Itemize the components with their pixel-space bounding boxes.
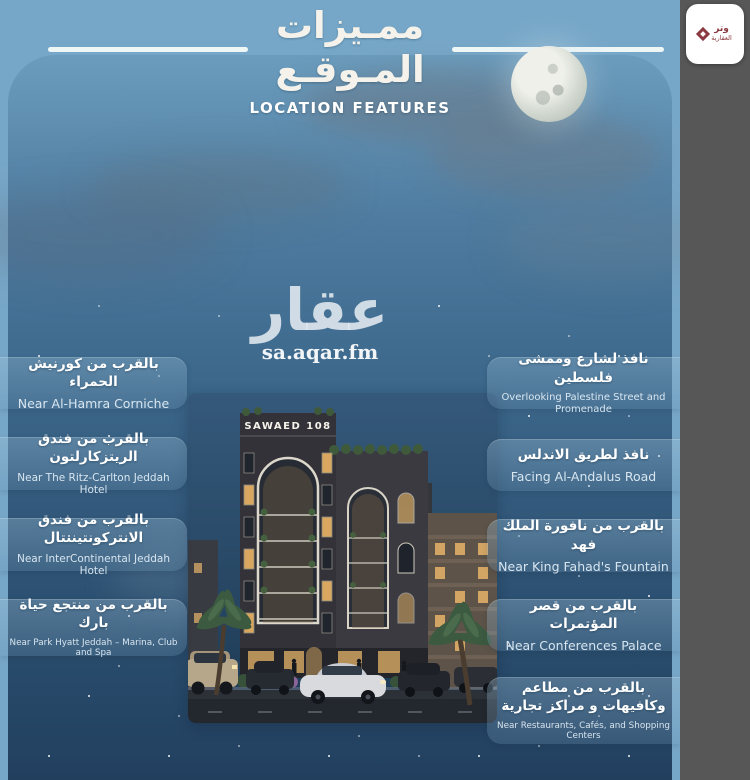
feature-english: Near King Fahad's Fountain bbox=[498, 559, 669, 574]
feature-english: Overlooking Palestine Street and Promena… bbox=[495, 392, 672, 416]
partner-name-line2: العقارية bbox=[711, 35, 732, 42]
partner-logo-card: وتر العقارية bbox=[686, 4, 744, 64]
building-illustration: SAWAED 108 bbox=[188, 393, 497, 723]
feature-arabic: بالقرب من نافورة الملك فهد bbox=[495, 517, 672, 553]
feature-english: Near Park Hyatt Jeddah – Marina, Club an… bbox=[8, 638, 179, 659]
feature-english: Near Restaurants, Cafés, and Shopping Ce… bbox=[495, 721, 672, 742]
feature-arabic: بالقرب من منتجع حياة بارك bbox=[8, 596, 179, 632]
building-sign-text: SAWAED 108 bbox=[244, 421, 331, 432]
feature-box-palestine-street: نافذ لشارع وممشى فلسطين Overlooking Pale… bbox=[487, 357, 680, 409]
feature-arabic: بالقرب من قصر المؤتمرات bbox=[495, 597, 672, 633]
feature-english: Near Al-Hamra Corniche bbox=[18, 396, 170, 411]
title-arabic-line1: ممـيزات bbox=[20, 4, 680, 48]
page-title: ممـيزات المـوقـع LOCATION FEATURES bbox=[20, 4, 680, 117]
aqar-domain-text: sa.aqar.fm bbox=[160, 340, 480, 364]
feature-box-andalus-road: نافذ لطريق الاندلس Facing Al-Andalus Roa… bbox=[487, 439, 680, 491]
feature-english: Near InterContinental Jeddah Hotel bbox=[8, 553, 179, 578]
title-english: LOCATION FEATURES bbox=[20, 99, 680, 117]
building-render-photo: SAWAED 108 bbox=[188, 393, 497, 723]
feature-arabic: بالقرب من فندق الريتزكارلتون bbox=[8, 430, 179, 466]
feature-arabic: بالقرب من كورنيش الحمراء bbox=[8, 355, 179, 391]
feature-arabic: نافذ لطريق الاندلس bbox=[518, 446, 650, 464]
feature-english: Near The Ritz-Carlton Jeddah Hotel bbox=[8, 472, 179, 497]
feature-box-conferences-palace: بالقرب من قصر المؤتمرات Near Conferences… bbox=[487, 599, 680, 651]
cloud-decoration bbox=[430, 115, 660, 195]
feature-english: Near Conferences Palace bbox=[505, 638, 661, 653]
title-arabic-line2: المـوقـع bbox=[20, 48, 680, 92]
aqar-watermark: عقار sa.aqar.fm bbox=[160, 280, 480, 364]
aqar-logo-text: عقار bbox=[160, 280, 480, 340]
feature-arabic: بالقرب من مطاعم وكافيهات و مراكز تجارية bbox=[495, 679, 672, 715]
stars-decoration-dim bbox=[8, 55, 10, 57]
feature-arabic: بالقرب من فندق الانتركونتيننتال bbox=[8, 511, 179, 547]
partner-logo: وتر العقارية bbox=[698, 25, 732, 42]
feature-box-ritz-carlton: بالقرب من فندق الريتزكارلتون Near The Ri… bbox=[0, 437, 187, 490]
feature-arabic: نافذ لشارع وممشى فلسطين bbox=[495, 350, 672, 386]
feature-box-park-hyatt: بالقرب من منتجع حياة بارك Near Park Hyat… bbox=[0, 599, 187, 656]
right-gray-strip: وتر العقارية bbox=[680, 0, 750, 780]
poster-main-area: ممـيزات المـوقـع LOCATION FEATURES عقار … bbox=[0, 0, 680, 780]
feature-english: Facing Al-Andalus Road bbox=[511, 469, 656, 484]
location-features-poster: ممـيزات المـوقـع LOCATION FEATURES عقار … bbox=[0, 0, 750, 780]
feature-box-restaurants-shopping: بالقرب من مطاعم وكافيهات و مراكز تجارية … bbox=[487, 677, 680, 744]
feature-box-intercontinental: بالقرب من فندق الانتركونتيننتال Near Int… bbox=[0, 518, 187, 571]
feature-box-alhamra-corniche: بالقرب من كورنيش الحمراء Near Al-Hamra C… bbox=[0, 357, 187, 409]
diamond-logo-icon bbox=[696, 27, 710, 41]
feature-box-king-fahad-fountain: بالقرب من نافورة الملك فهد Near King Fah… bbox=[487, 519, 680, 572]
